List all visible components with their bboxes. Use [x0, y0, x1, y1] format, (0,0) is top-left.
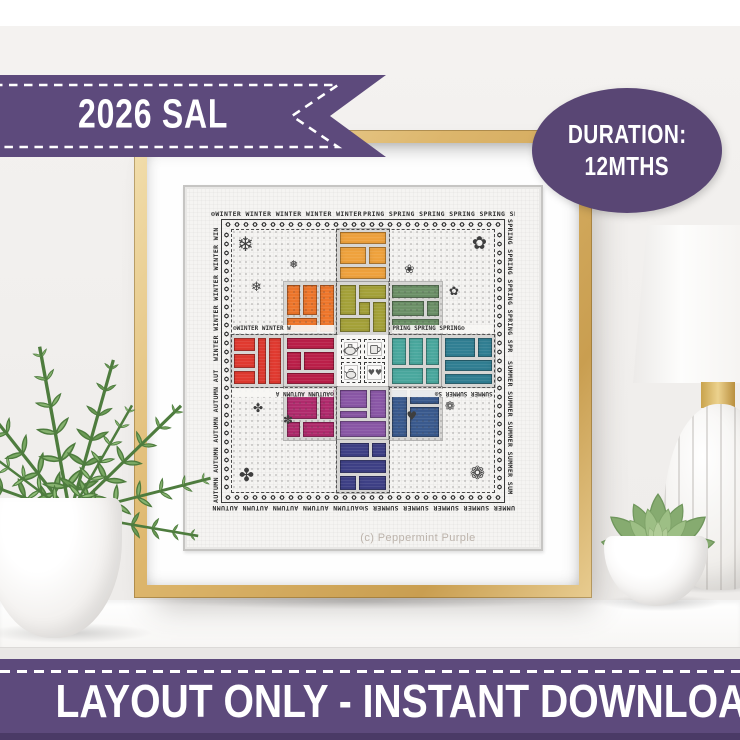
flower-icon: ✿ [449, 285, 459, 297]
border-words-bottom: UMMER SUMMER SUMMER SUMMER SUMMER SUM⊙ ⊙… [211, 503, 515, 513]
flower-icon: ✿ [472, 235, 487, 253]
hearts-motif: ♥♥ [364, 362, 385, 383]
flower-band-right [495, 229, 504, 493]
hearts-icon: ♥♥ [368, 368, 382, 377]
sal-ribbon-banner: 2026 SAL [0, 75, 386, 157]
block-group-teal-dark [442, 335, 495, 388]
teapot-motif [341, 339, 362, 360]
block-group-purple [337, 387, 390, 440]
banner-bottom-strip [0, 733, 740, 740]
stitch-brick [340, 460, 387, 474]
stitch-brick [340, 421, 387, 437]
spring-words: PRING SPRING SPRING SPRING SPRING SPRING… [363, 209, 515, 219]
stitch-brick [373, 302, 386, 332]
stitch-brick [392, 338, 406, 366]
stitch-brick [340, 390, 368, 408]
snowflake-icon: ❄ [237, 234, 254, 254]
border-words-top: ⊙WINTER WINTER WINTER WINTER WINTER WIN … [211, 209, 515, 219]
stitch-brick [392, 368, 422, 384]
heart-icon: ♥ [406, 410, 417, 422]
border-words-right-spring: SPRING SPRING SPRING SPRING SPR [505, 219, 515, 361]
stitch-brick [269, 338, 281, 385]
stitch-brick [426, 338, 440, 366]
sal-title: 2026 SAL [78, 91, 228, 138]
stitch-brick [340, 318, 371, 332]
winter-words: ⊙WINTER WINTER WINTER WINTER WINTER WIN [211, 209, 363, 219]
stitch-brick [370, 390, 386, 418]
stitch-brick [340, 443, 370, 457]
block-group-amber [337, 229, 390, 282]
stitch-brick [445, 338, 475, 358]
stitch-brick [369, 247, 387, 263]
copyright-caption: (c) Peppermint Purple [240, 532, 596, 544]
top-white-band [0, 0, 740, 26]
block-group-indigo [337, 440, 390, 493]
block-group-crimson [284, 335, 337, 388]
summer-motif-quadrant: ❁ ♥ ❁ SUMMER SUMMER S⊙ [389, 387, 495, 493]
stitch-brick [304, 352, 334, 370]
flower-icon: ❀ [404, 263, 414, 275]
block-group-olive [337, 282, 390, 335]
summer-words: UMMER SUMMER SUMMER SUMMER SUMMER SUM⊙ [363, 503, 515, 513]
banner-title: LAYOUT ONLY - INSTANT DOWNLOAD [56, 674, 685, 728]
stitch-brick [287, 352, 301, 370]
stitch-brick [287, 373, 334, 384]
stitch-brick [445, 360, 492, 371]
leaf-icon: ✤ [253, 402, 263, 414]
stitch-brick [478, 338, 492, 358]
block-group-teal-light [389, 335, 442, 388]
stitch-brick [340, 267, 387, 279]
stitch-brick [426, 368, 440, 384]
stitch-brick [258, 338, 266, 385]
flower-band-bottom [222, 493, 504, 502]
spring-motif-quadrant: ✿ ❀ ✿ PRING SPRING SPRING⊙ [389, 229, 495, 335]
duration-badge: DURATION: 12MTHS [532, 88, 722, 213]
stitch-brick [445, 374, 492, 385]
stitch-brick [359, 476, 387, 490]
duration-value: 12MTHS [585, 151, 669, 182]
lamp-shade [633, 225, 740, 383]
duration-label: DURATION: [568, 119, 687, 150]
stitch-brick [372, 443, 386, 457]
teapot-icon [342, 342, 360, 356]
banner-dashed-line [0, 670, 740, 673]
stitch-brick [340, 247, 366, 263]
kettle-icon [343, 366, 359, 380]
flower-icon: ❁ [445, 400, 455, 412]
flower-band-top [222, 220, 504, 229]
stitch-brick [287, 338, 334, 349]
stitch-brick [340, 285, 357, 315]
flower-icon: ❁ [470, 465, 485, 483]
stitch-brick [340, 232, 387, 244]
mug-motif [364, 339, 385, 360]
stitch-brick [359, 302, 370, 315]
pattern-core-grid: ❄ ❅ ❄ ⊙WINTER WINTER W ✿ ❀ ✿ PRING SPRIN… [231, 229, 495, 493]
stitch-brick [359, 285, 386, 299]
border-words-right-summer: SUMMER SUMMER SUMMER SUMMER SUM [505, 361, 515, 503]
stitch-brick [340, 411, 368, 418]
mug-icon [367, 342, 383, 356]
cross-stitch-pattern: ⊙WINTER WINTER WINTER WINTER WINTER WIN … [211, 209, 515, 513]
inner-words-spring: PRING SPRING SPRING⊙ [392, 325, 493, 333]
leaf-icon: ✽ [283, 414, 293, 426]
kettle-motif [341, 362, 362, 383]
inner-words-summer: SUMMER SUMMER S⊙ [392, 389, 493, 397]
snowflake-icon: ❅ [289, 259, 298, 270]
stitch-brick [340, 476, 356, 490]
stitch-brick [409, 338, 423, 366]
bottom-banner: LAYOUT ONLY - INSTANT DOWNLOAD [0, 659, 740, 740]
center-motif-square: ♥♥ [337, 335, 390, 388]
